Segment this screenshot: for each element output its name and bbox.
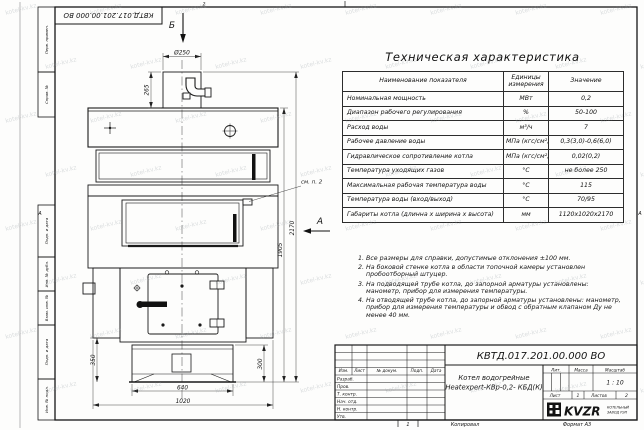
table-row: Гидравлическое сопротивление котлаМПа (к… bbox=[343, 150, 624, 165]
kvzr-logo: KVZR КОТЕЛЬНЫЙ ЗАВОД РЭП bbox=[547, 403, 629, 419]
notes-section: Все размеры для справки, допустимые откл… bbox=[352, 255, 624, 321]
logo-text: KVZR bbox=[564, 405, 601, 419]
note-item: Все размеры для справки, допустимые откл… bbox=[366, 255, 624, 262]
margin-labels: Перв. примен. Справ. № Подп. и дата Инв.… bbox=[44, 25, 49, 413]
table-row: Рабочее давление водыМПа (кгс/см²)0,3(3,… bbox=[343, 135, 624, 150]
svg-text:Перв. примен.: Перв. примен. bbox=[44, 25, 49, 54]
svg-text:Справ. №: Справ. № bbox=[44, 85, 49, 104]
table-row: Температура уходящих газов°Сне более 250 bbox=[343, 164, 624, 179]
spec-section: Техническая характеристика Наименование … bbox=[342, 50, 623, 223]
dim-2170: 2170 bbox=[290, 220, 296, 235]
mass-label: Масса bbox=[574, 368, 588, 373]
spec-header-row: Наименование показателя Единицы измерени… bbox=[343, 72, 624, 92]
boiler-front-view bbox=[83, 60, 278, 400]
top-stamp-number: КВТД.017.201.00.000 ВО bbox=[63, 11, 153, 19]
table-row: Номинальная мощностьМВт0,2 bbox=[343, 92, 624, 107]
staff-tkontr: Т. контр. bbox=[337, 392, 357, 398]
svg-text:Подп. и дата: Подп. и дата bbox=[44, 338, 49, 365]
staff-nkontr: Н. контр. bbox=[337, 407, 358, 413]
staff-razrab: Разраб. bbox=[337, 377, 354, 383]
format-label: Формат А3 bbox=[563, 422, 591, 428]
spec-title: Техническая характеристика bbox=[342, 50, 623, 64]
dim-1020: 1020 bbox=[176, 399, 191, 405]
note-item: На боковой стенке котла в области топочн… bbox=[366, 264, 624, 278]
svg-text:Взам. инв. №: Взам. инв. № bbox=[44, 295, 49, 321]
qr-icon bbox=[547, 403, 561, 417]
product-name-line2: Heatexpert-КВр-0,2- КБД(К) bbox=[445, 384, 542, 392]
dim-300: 300 bbox=[258, 358, 264, 369]
table-row: Максимальная рабочая температура воды°С1… bbox=[343, 179, 624, 194]
scale-value: 1 : 10 bbox=[606, 380, 623, 387]
title-block-texts: КВТД.017.201.00.000 ВО Изм. Лист № докум… bbox=[337, 351, 629, 428]
table-row: Диапазон рабочего регулирования%50-100 bbox=[343, 106, 624, 121]
dim-265: 265 bbox=[145, 84, 151, 95]
zone-letter-right: А bbox=[637, 211, 642, 217]
col-docnum: № докум. bbox=[376, 368, 398, 373]
note-item: На отводящей трубе котла, до запорной ар… bbox=[366, 297, 624, 319]
sheets-value: 2 bbox=[625, 393, 628, 399]
doc-number: КВТД.017.201.00.000 ВО bbox=[477, 351, 606, 362]
svg-text:Инв. № подл.: Инв. № подл. bbox=[44, 386, 49, 413]
col-data: Дата bbox=[430, 368, 442, 373]
spec-header-value: Значение bbox=[549, 72, 624, 92]
view-label-a: А bbox=[316, 217, 323, 227]
spec-header-units: Единицы измерения bbox=[504, 72, 549, 92]
table-row: Расход водым³/ч7 bbox=[343, 121, 624, 136]
dim-350: 350 bbox=[91, 354, 97, 365]
staff-utv: Утв. bbox=[337, 414, 346, 420]
drawing-sheet: 2 1 А А КВТД.017.201.00.000 ВО Перв. при… bbox=[0, 0, 644, 430]
table-row: Температура воды (вход/выход)°С70/95 bbox=[343, 193, 624, 208]
sheet-label: Лист bbox=[549, 393, 561, 398]
svg-text:Подп. и дата: Подп. и дата bbox=[44, 217, 49, 244]
spec-header-name: Наименование показателя bbox=[343, 72, 504, 92]
notes-list: Все размеры для справки, допустимые откл… bbox=[352, 255, 624, 319]
table-row: Габариты котла (длинна х ширина х высота… bbox=[343, 208, 624, 223]
copied-label: Копировал bbox=[451, 422, 480, 428]
lit-label: Лит. bbox=[550, 368, 561, 373]
callout-see-note-2: см. п. 2 bbox=[301, 180, 323, 186]
svg-text:Инв. № дубл.: Инв. № дубл. bbox=[44, 261, 49, 288]
zone-number-top: 2 bbox=[203, 2, 206, 8]
col-list: Лист bbox=[353, 368, 365, 373]
staff-nachotd: Нач. отд. bbox=[337, 399, 358, 405]
scale-label: Масштаб bbox=[605, 368, 625, 373]
staff-prov: Пров. bbox=[337, 384, 350, 390]
zone-number-bottom: 1 bbox=[406, 422, 409, 428]
logo-caption-1: КОТЕЛЬНЫЙ bbox=[607, 405, 629, 410]
col-podp: Подп. bbox=[411, 368, 424, 373]
col-izm: Изм. bbox=[339, 368, 349, 373]
logo-caption-2: ЗАВОД РЭП bbox=[607, 411, 628, 415]
top-left-doc-stamp: КВТД.017.201.00.000 ВО bbox=[55, 7, 162, 24]
product-name-line1: Котел водогрейные bbox=[458, 374, 529, 382]
note-item: На подводящей трубе котла, до запорной а… bbox=[366, 281, 624, 295]
dim-diameter-250: Ø250 bbox=[173, 50, 190, 57]
dim-640: 640 bbox=[177, 386, 188, 392]
spec-table: Наименование показателя Единицы измерени… bbox=[342, 71, 624, 223]
dim-1905: 1905 bbox=[278, 242, 284, 257]
sheets-label: Листов bbox=[590, 393, 607, 398]
view-label-b: Б bbox=[169, 21, 175, 31]
sheet-value: 1 bbox=[577, 393, 580, 399]
